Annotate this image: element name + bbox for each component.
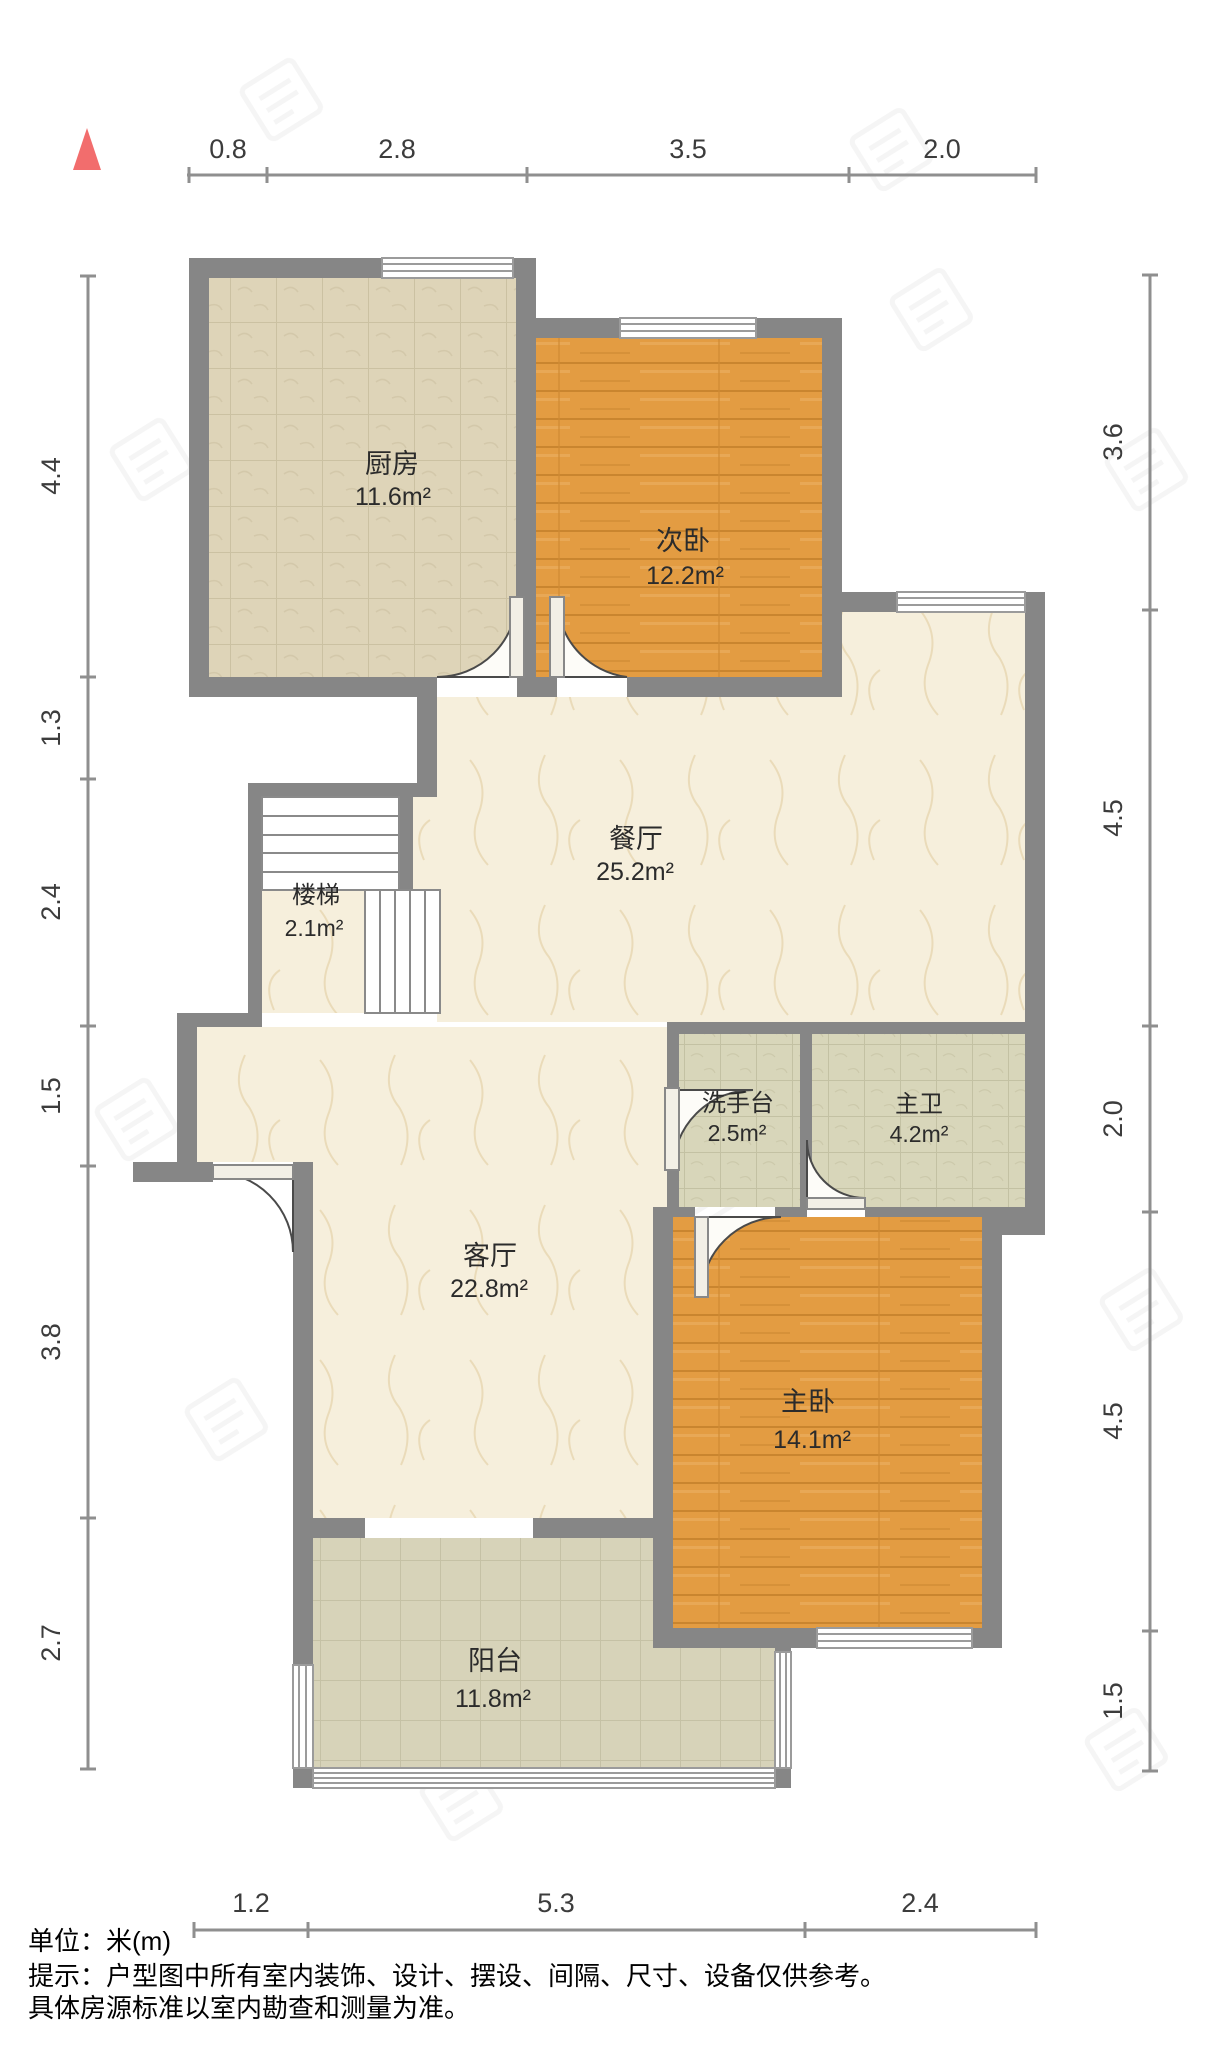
room-living-area: 22.8m² bbox=[450, 1275, 528, 1303]
room-wash-basin-area: 2.5m² bbox=[708, 1120, 767, 1146]
room-living-label: 客厅 bbox=[463, 1241, 517, 1271]
room-stairs-label: 楼梯 bbox=[292, 882, 340, 909]
room-kitchen-label: 厨房 bbox=[365, 449, 419, 479]
dining-window bbox=[897, 592, 1025, 612]
dim-top-0: 0.8 bbox=[209, 134, 247, 164]
room-master-bath-area: 4.2m² bbox=[890, 1121, 949, 1147]
room-master-bedroom-floor bbox=[673, 1217, 982, 1628]
room-secondary-bedroom-area: 12.2m² bbox=[646, 562, 724, 590]
footer-disclaimer-line2: 具体房源标准以室内勘查和测量为准。 bbox=[28, 1993, 470, 2023]
kitchen-window bbox=[382, 258, 513, 278]
dim-top-2: 3.5 bbox=[669, 134, 707, 164]
secondary-bedroom-window bbox=[620, 318, 756, 338]
dim-left-4: 3.8 bbox=[36, 1323, 66, 1361]
entry-door bbox=[213, 1165, 293, 1252]
room-dining-label: 餐厅 bbox=[609, 824, 663, 854]
balcony-right-window bbox=[775, 1652, 791, 1768]
dim-bottom-2: 2.4 bbox=[901, 1888, 939, 1918]
room-stairs-area: 2.1m² bbox=[285, 915, 344, 941]
room-kitchen-floor bbox=[209, 278, 516, 677]
balcony-railing bbox=[313, 1768, 775, 1788]
room-balcony-area: 11.8m² bbox=[455, 1685, 531, 1713]
dim-left-1: 1.3 bbox=[36, 709, 66, 747]
dim-right-0: 3.6 bbox=[1098, 423, 1128, 461]
footer-notes: 单位：米(m) 提示：户型图中所有室内装饰、设计、摆设、间隔、尺寸、设备仅供参考… bbox=[28, 1926, 886, 2023]
room-master-bedroom-area: 14.1m² bbox=[773, 1426, 851, 1454]
room-dining-floor-upper-right bbox=[842, 612, 1025, 697]
footer-disclaimer-line1: 提示：户型图中所有室内装饰、设计、摆设、间隔、尺寸、设备仅供参考。 bbox=[28, 1961, 886, 1991]
north-arrow-icon bbox=[73, 128, 101, 170]
dim-top-3: 2.0 bbox=[923, 134, 961, 164]
dim-left-5: 2.7 bbox=[36, 1624, 66, 1662]
room-living-floor bbox=[313, 1162, 667, 1518]
dim-bottom-0: 1.2 bbox=[232, 1888, 270, 1918]
room-master-bedroom-label: 主卧 bbox=[781, 1387, 835, 1417]
dim-right-1: 4.5 bbox=[1098, 799, 1128, 837]
room-living-floor-upper bbox=[197, 1027, 667, 1162]
floor-plan-page: 厨房 11.6m² 次卧 12.2m² 餐厅 25.2m² 楼梯 2.1m² 洗… bbox=[0, 0, 1223, 2048]
room-wash-basin-label: 洗手台 bbox=[702, 1090, 774, 1117]
room-secondary-bedroom-label: 次卧 bbox=[656, 526, 710, 556]
room-dining-floor bbox=[437, 697, 1025, 1022]
footer-unit-note: 单位：米(m) bbox=[28, 1926, 171, 1956]
room-kitchen-area: 11.6m² bbox=[355, 483, 431, 511]
dim-left-3: 1.5 bbox=[36, 1077, 66, 1115]
dim-right-2: 2.0 bbox=[1098, 1100, 1128, 1138]
dim-left-0: 4.4 bbox=[36, 457, 66, 495]
dim-top-1: 2.8 bbox=[378, 134, 416, 164]
room-master-bath-label: 主卫 bbox=[895, 1091, 943, 1118]
dim-bottom-1: 5.3 bbox=[537, 1888, 575, 1918]
dim-right-3: 4.5 bbox=[1098, 1402, 1128, 1440]
balcony-left-window bbox=[293, 1665, 313, 1768]
master-bedroom-window bbox=[817, 1628, 972, 1648]
room-secondary-bedroom-floor bbox=[536, 338, 822, 677]
dim-left-2: 2.4 bbox=[36, 883, 66, 921]
floor-plan: 厨房 11.6m² 次卧 12.2m² 餐厅 25.2m² 楼梯 2.1m² 洗… bbox=[0, 0, 1223, 2048]
room-balcony-label: 阳台 bbox=[468, 1646, 522, 1676]
dim-right-4: 1.5 bbox=[1098, 1682, 1128, 1720]
room-dining-area: 25.2m² bbox=[596, 858, 674, 886]
